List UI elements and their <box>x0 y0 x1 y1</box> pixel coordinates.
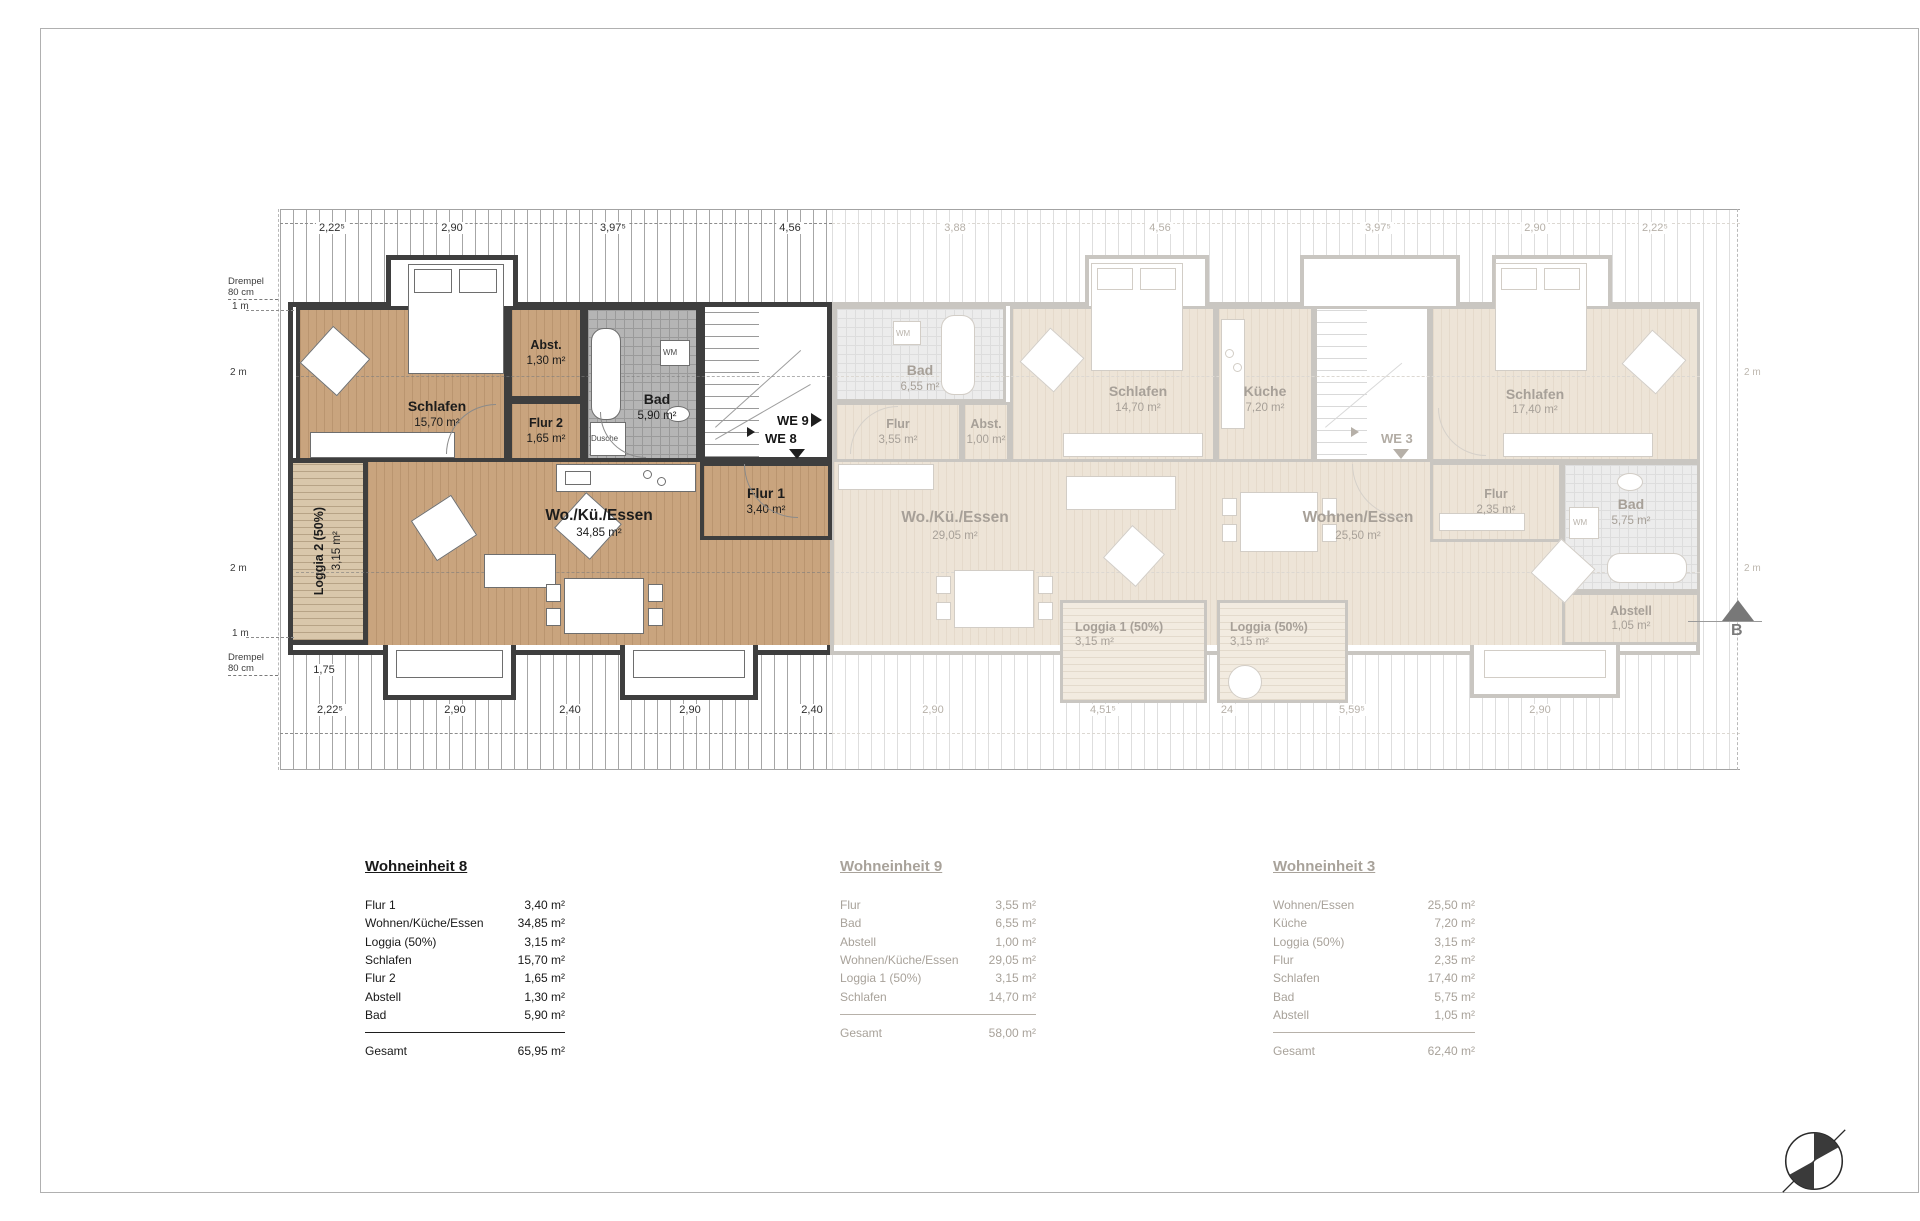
dim-bottom-3: 2,90 <box>676 704 703 716</box>
height-line-1m <box>246 637 294 638</box>
row-label: Küche <box>1273 916 1307 930</box>
room-we3-flur: Flur 2,35 m² <box>1430 462 1562 542</box>
table-row: Abstell1,30 m² <box>365 987 565 1005</box>
row-value: 7,20 m² <box>1434 916 1475 930</box>
dim-top-1: 2,90 <box>438 222 465 234</box>
dim-bottom-1: 2,90 <box>441 704 468 716</box>
table-title: Wohneinheit 9 <box>840 858 942 875</box>
table-rule <box>840 1014 1036 1015</box>
room-name: Abst. <box>527 337 566 353</box>
dim-top-6: 3,97⁵ <box>1362 222 1394 234</box>
table-total-row: Gesamt65,95 m² <box>365 1042 565 1060</box>
dim-inner-175: 1,75 <box>310 664 337 676</box>
sink <box>565 471 591 485</box>
total-value: 58,00 m² <box>989 1026 1036 1040</box>
row-label: Bad <box>365 1008 386 1022</box>
row-value: 14,70 m² <box>989 990 1036 1004</box>
table-rule <box>1273 1032 1475 1033</box>
armchair <box>300 326 371 397</box>
round-table <box>1228 665 1262 699</box>
roof-dashline <box>280 733 832 734</box>
height-label-2m-top-right: 2 m <box>1744 367 1761 378</box>
table-wohneinheit-9: Wohneinheit 9 Flur3,55 m² Bad6,55 m² Abs… <box>840 858 1036 1042</box>
plan-left-dashline <box>278 209 279 770</box>
chair <box>936 602 951 620</box>
room-we9-loggia1: Loggia 1 (50%) 3,15 m² <box>1060 600 1207 703</box>
roof-dashline <box>832 733 1740 734</box>
dormer-south-we8-a <box>383 645 516 700</box>
drempel-word: Drempel <box>228 276 278 287</box>
pillow <box>1544 268 1580 290</box>
dim-top-3: 4,56 <box>776 222 803 234</box>
sideboard <box>1503 433 1653 457</box>
table-row: Bad5,90 m² <box>365 1006 565 1024</box>
dim-bottom-7: 24 <box>1218 704 1236 716</box>
table-row: Flur3,55 m² <box>840 896 1036 914</box>
dim-bottom-8: 5,59⁵ <box>1336 704 1368 716</box>
stair-direction-arrow-icon <box>1351 427 1359 437</box>
sofa <box>633 650 745 678</box>
total-label: Gesamt <box>1273 1044 1315 1058</box>
table-row: Wohnen/Küche/Essen29,05 m² <box>840 951 1036 969</box>
bed <box>408 264 504 374</box>
chair <box>648 608 663 626</box>
arrow-down-icon <box>1393 449 1409 459</box>
table-wohneinheit-3: Wohneinheit 3 Wohnen/Essen25,50 m² Küche… <box>1273 858 1475 1060</box>
kitchen-counter <box>838 464 934 490</box>
stairwell-we8-we9: WE 9 WE 8 <box>700 302 832 462</box>
row-value: 25,50 m² <box>1428 898 1475 912</box>
room-we9-abstell: Abst. 1,00 m² <box>962 402 1010 462</box>
row-label: Abstell <box>365 990 401 1004</box>
bathtub <box>941 315 975 395</box>
room-we3-abstell: Abstell 1,05 m² <box>1562 592 1700 645</box>
row-value: 1,65 m² <box>524 971 565 985</box>
drempel-label-top: Drempel 80 cm <box>228 276 278 300</box>
dim-top-2: 3,97⁵ <box>597 222 629 234</box>
dim-bottom-4: 2,40 <box>798 704 825 716</box>
table-row: Flur 13,40 m² <box>365 896 565 914</box>
hob-burner <box>1233 363 1242 372</box>
stair-direction-arrow-icon <box>747 427 755 437</box>
dim-top-8: 2,22⁵ <box>1639 222 1671 234</box>
room-name: Loggia 2 (50%) <box>311 507 327 595</box>
armchair <box>411 495 477 561</box>
row-label: Wohnen/Küche/Essen <box>840 953 959 967</box>
drempel-height: 80 cm <box>228 287 278 298</box>
total-value: 65,95 m² <box>518 1044 565 1058</box>
pillow <box>1501 268 1537 290</box>
row-label: Wohnen/Küche/Essen <box>365 916 484 930</box>
table-row: Loggia (50%)3,15 m² <box>1273 933 1475 951</box>
room-name: Bad <box>638 390 677 408</box>
room-we3-kueche: Küche 7,20 m² <box>1216 306 1314 462</box>
armchair <box>1103 525 1165 587</box>
sofa <box>396 650 503 678</box>
row-label: Flur 2 <box>365 971 396 985</box>
row-label: Flur <box>840 898 861 912</box>
stair-treads <box>1317 309 1367 455</box>
wm-label: WM <box>1573 518 1587 527</box>
table-row: Loggia 1 (50%)3,15 m² <box>840 969 1036 987</box>
roof-edge-top <box>280 209 1740 210</box>
room-we9-schlafen: Schlafen 14,70 m² <box>1010 306 1216 462</box>
table-rule <box>365 1032 565 1033</box>
row-value: 2,35 m² <box>1434 953 1475 967</box>
drempel-label-bottom: Drempel 80 cm <box>228 652 278 676</box>
floor-patch <box>1430 542 1562 645</box>
table-row: Abstell1,00 m² <box>840 933 1036 951</box>
room-we8-wohnen: Wo./Kü./Essen 34,85 m² <box>368 462 700 645</box>
room-name: Schlafen <box>1109 382 1167 400</box>
table-total-row: Gesamt62,40 m² <box>1273 1042 1475 1060</box>
dim-bottom-6: 4,51⁵ <box>1087 704 1119 716</box>
chair <box>936 576 951 594</box>
room-area: 3,15 m² <box>330 507 345 595</box>
room-name: Abst. <box>967 416 1006 432</box>
kitchen-counter <box>1221 319 1245 429</box>
table-row: Flur 21,65 m² <box>365 969 565 987</box>
table-row: Küche7,20 m² <box>1273 914 1475 932</box>
chair <box>546 584 561 602</box>
marker-we8: WE 8 <box>765 431 797 446</box>
drempel-height: 80 cm <box>228 663 278 674</box>
height-label-2m-bottom-right: 2 m <box>1744 563 1761 574</box>
table-row: Bad6,55 m² <box>840 914 1036 932</box>
room-area: 1,05 m² <box>1610 619 1652 634</box>
row-label: Loggia 1 (50%) <box>840 971 921 985</box>
row-label: Loggia (50%) <box>1273 935 1344 949</box>
row-label: Flur 1 <box>365 898 396 912</box>
total-label: Gesamt <box>840 1026 882 1040</box>
height-label-2m-top-left: 2 m <box>230 367 247 378</box>
bathtub <box>591 328 621 420</box>
room-name: Flur <box>1477 486 1516 502</box>
room-name: Schlafen <box>408 397 466 415</box>
row-label: Bad <box>1273 990 1294 1004</box>
table-row: Flur2,35 m² <box>1273 951 1475 969</box>
row-label: Flur <box>1273 953 1294 967</box>
drempel-word: Drempel <box>228 652 278 663</box>
room-name: Bad <box>901 361 940 379</box>
dormer-south-we3 <box>1470 645 1620 698</box>
row-value: 3,15 m² <box>1434 935 1475 949</box>
row-label: Schlafen <box>1273 971 1320 985</box>
table-row: Bad5,75 m² <box>1273 987 1475 1005</box>
row-value: 34,85 m² <box>518 916 565 930</box>
bathtub <box>1607 553 1687 583</box>
chair <box>1222 498 1237 516</box>
row-label: Schlafen <box>840 990 887 1004</box>
section-line <box>1688 621 1762 622</box>
row-value: 3,15 m² <box>524 935 565 949</box>
pillow <box>414 269 452 293</box>
row-label: Abstell <box>1273 1008 1309 1022</box>
room-area: 7,20 m² <box>1244 401 1287 416</box>
dining-table <box>564 578 644 634</box>
room-we3-loggia: Loggia (50%) 3,15 m² <box>1217 600 1348 703</box>
table-wohneinheit-8: Wohneinheit 8 Flur 13,40 m² Wohnen/Küche… <box>365 858 565 1060</box>
room-area: 5,75 m² <box>1612 514 1651 529</box>
row-label: Wohnen/Essen <box>1273 898 1354 912</box>
sideboard <box>310 432 455 458</box>
room-area: 29,05 m² <box>901 529 1008 544</box>
hob-burner <box>643 470 652 479</box>
pillow <box>1097 268 1133 290</box>
coffee-table <box>484 554 556 588</box>
room-name: Loggia (50%) <box>1230 619 1308 635</box>
height-label-1m-bottom: 1 m <box>232 628 249 639</box>
room-we8-loggia2: Loggia 2 (50%) 3,15 m² <box>288 458 368 645</box>
kitchen-counter <box>556 464 696 492</box>
pillow <box>1140 268 1176 290</box>
room-area: 6,55 m² <box>901 380 940 395</box>
hob-burner <box>657 477 666 486</box>
armchair <box>1020 328 1085 393</box>
chair <box>1038 602 1053 620</box>
stairwell-we3: WE 3 <box>1314 306 1430 462</box>
dim-bottom-9: 2,90 <box>1526 704 1553 716</box>
row-value: 3,40 m² <box>524 898 565 912</box>
room-name: Loggia 1 (50%) <box>1075 619 1163 635</box>
dim-bottom-5: 2,90 <box>919 704 946 716</box>
total-value: 62,40 m² <box>1428 1044 1475 1058</box>
room-name: Schlafen <box>1506 385 1564 403</box>
row-value: 5,90 m² <box>524 1008 565 1022</box>
arrow-down-icon <box>789 449 805 459</box>
table-row: Wohnen/Essen25,50 m² <box>1273 896 1475 914</box>
hob-burner <box>1225 349 1234 358</box>
arrow-right-icon <box>811 413 822 427</box>
room-name: Küche <box>1244 382 1287 400</box>
room-we8-abstell: Abst. 1,30 m² <box>508 306 584 400</box>
chair <box>648 584 663 602</box>
dormer-stairwell <box>1300 255 1460 307</box>
room-area: 2,35 m² <box>1477 503 1516 518</box>
dim-bottom-0: 2,22⁵ <box>314 704 346 716</box>
north-compass-icon <box>1775 1122 1853 1200</box>
row-label: Loggia (50%) <box>365 935 436 949</box>
table-row: Schlafen14,70 m² <box>840 987 1036 1005</box>
dormer-south-we8-b <box>620 645 758 700</box>
row-value: 1,05 m² <box>1434 1008 1475 1022</box>
row-value: 3,55 m² <box>995 898 1036 912</box>
table-row: Wohnen/Küche/Essen34,85 m² <box>365 914 565 932</box>
dim-top-0: 2,22⁵ <box>316 222 348 234</box>
total-label: Gesamt <box>365 1044 407 1058</box>
dim-top-7: 2,90 <box>1521 222 1548 234</box>
floor-plan-sheet: Schlafen 15,70 m² Abst. 1,30 m² Flur 2 1… <box>0 0 1920 1221</box>
row-value: 1,00 m² <box>995 935 1036 949</box>
room-we9-bad: WM Bad 6,55 m² <box>834 306 1006 402</box>
bed <box>1091 263 1183 371</box>
room-name: Bad <box>1612 495 1651 513</box>
height-label-1m-top: 1 m <box>232 301 249 312</box>
height-label-2m-bottom-left: 2 m <box>230 563 247 574</box>
chair <box>546 608 561 626</box>
row-value: 5,75 m² <box>1434 990 1475 1004</box>
row-value: 17,40 m² <box>1428 971 1475 985</box>
table-row: Abstell1,05 m² <box>1273 1006 1475 1024</box>
room-area: 25,50 m² <box>1303 529 1414 544</box>
table-title: Wohneinheit 3 <box>1273 858 1375 875</box>
row-label: Bad <box>840 916 861 930</box>
sink <box>1617 473 1643 491</box>
room-name: Flur 2 <box>527 415 566 431</box>
room-we8-flur2: Flur 2 1,65 m² <box>508 400 584 462</box>
row-value: 1,30 m² <box>524 990 565 1004</box>
roof-dashline <box>280 223 832 224</box>
table-row: Schlafen15,70 m² <box>365 951 565 969</box>
dim-top-5: 4,56 <box>1146 222 1173 234</box>
wm-label: WM <box>663 348 677 357</box>
room-area: 1,30 m² <box>527 354 566 369</box>
room-name: Wo./Kü./Essen <box>901 508 1008 528</box>
room-area: 34,85 m² <box>545 526 652 541</box>
row-value: 29,05 m² <box>989 953 1036 967</box>
room-area: 17,40 m² <box>1506 403 1564 418</box>
room-area: 1,00 m² <box>967 433 1006 448</box>
room-area: 14,70 m² <box>1109 401 1167 416</box>
table-row: Loggia (50%)3,15 m² <box>365 933 565 951</box>
height-line-1m <box>246 310 294 311</box>
floor-patch <box>700 540 830 645</box>
dim-bottom-2: 2,40 <box>556 704 583 716</box>
room-area: 1,65 m² <box>527 432 566 447</box>
room-area: 3,15 m² <box>1230 635 1269 650</box>
row-label: Schlafen <box>365 953 412 967</box>
sofa <box>1484 650 1606 678</box>
chair <box>1222 524 1237 542</box>
height-line-2m <box>296 376 830 377</box>
height-line-2m <box>296 572 830 573</box>
chair <box>1038 576 1053 594</box>
section-arrow-icon <box>1722 600 1754 621</box>
marker-we9: WE 9 <box>777 413 809 428</box>
row-value: 3,15 m² <box>995 971 1036 985</box>
row-value: 6,55 m² <box>995 916 1036 930</box>
row-value: 15,70 m² <box>518 953 565 967</box>
table-row: Schlafen17,40 m² <box>1273 969 1475 987</box>
room-name: Abstell <box>1610 603 1652 619</box>
plan-right-dashline <box>1737 209 1738 770</box>
sofa <box>1066 476 1176 510</box>
bed <box>1495 263 1587 371</box>
dining-table <box>954 570 1034 628</box>
table-total-row: Gesamt58,00 m² <box>840 1024 1036 1042</box>
row-label: Abstell <box>840 935 876 949</box>
table-title: Wohneinheit 8 <box>365 858 467 875</box>
section-label: B <box>1731 622 1743 640</box>
roof-edge-bottom <box>280 769 1740 770</box>
pillow <box>459 269 497 293</box>
sideboard <box>1063 433 1203 457</box>
wm-label: WM <box>896 329 910 338</box>
dim-top-4: 3,88 <box>941 222 968 234</box>
marker-we3: WE 3 <box>1381 431 1413 446</box>
armchair <box>1622 330 1687 395</box>
room-area: 3,15 m² <box>1075 635 1114 650</box>
room-name: Wo./Kü./Essen <box>545 506 652 526</box>
